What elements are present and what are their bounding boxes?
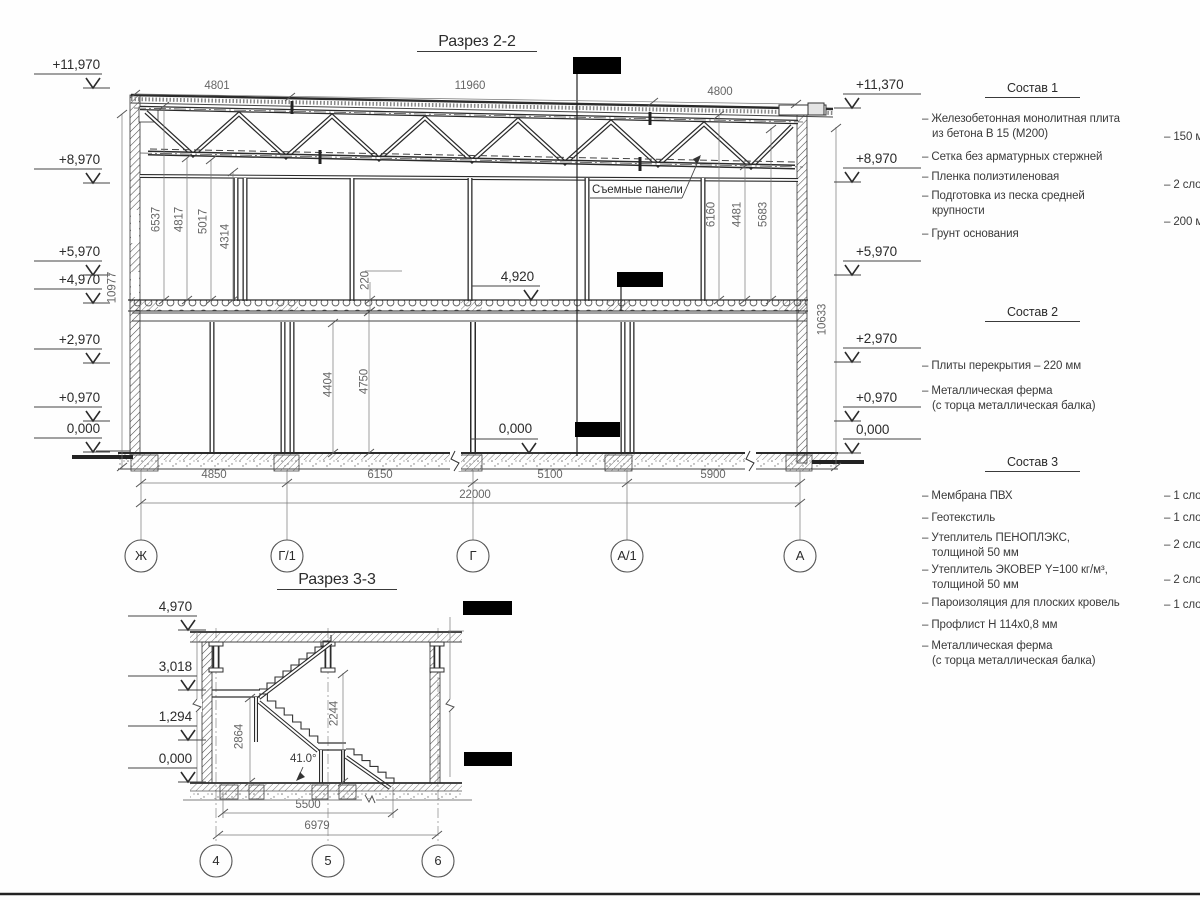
note-value: – 1 слой <box>1164 489 1200 504</box>
wall-right <box>797 112 807 463</box>
dim-label: 4801 <box>187 79 247 94</box>
elevation-label: +2,970 <box>28 332 100 347</box>
redaction-box <box>463 601 512 615</box>
dim-label: 5017 <box>197 192 212 252</box>
dim-label: 5683 <box>757 185 772 245</box>
dim-label: 4850 <box>174 468 254 483</box>
dim-label: 6537 <box>150 190 165 250</box>
columns-1st-floor <box>212 322 632 453</box>
elevation-label: +5,970 <box>28 244 100 259</box>
note-item: – Подготовка из песка средней крупности <box>922 189 1127 219</box>
dim-label: 4750 <box>358 352 373 412</box>
composition-2-title: Состав 2 <box>985 305 1080 322</box>
note-value: – 2 слоя <box>1164 538 1200 553</box>
elevation-label: +0,970 <box>856 390 931 405</box>
elevation-label: 1,294 <box>120 709 192 724</box>
note-item: – Грунт основания <box>922 227 1127 242</box>
composition-3-title: Состав 3 <box>985 455 1080 472</box>
note-value: – 2 слоя <box>1164 178 1200 193</box>
elevation-label: +11,370 <box>856 77 931 92</box>
note-item: – Плиты перекрытия – 220 мм <box>922 359 1127 374</box>
dim-label: 220 <box>359 251 374 311</box>
note-value: – 150 мм <box>1164 130 1200 145</box>
axis-bubble-label: 6 <box>418 853 458 868</box>
redaction-box <box>575 422 620 437</box>
elevation-label: +5,970 <box>856 244 931 259</box>
elevation-label: 0,000 <box>120 751 192 766</box>
drawing-sheet: Разрез 2-2 +11,970 +8,970 +5,970 +4,970 … <box>0 0 1200 900</box>
removable-panels-label: Съемные панели <box>592 183 687 198</box>
note-item: – Утеплитель ПЕНОПЛЭКС, толщиной 50 мм <box>922 531 1132 561</box>
elevation-label: +0,970 <box>28 390 100 405</box>
dim-label: 11960 <box>440 79 500 94</box>
angle-label: 41.0° <box>290 752 332 767</box>
note-value: – 200 мм <box>1164 215 1200 230</box>
note-item: – Пароизоляция для плоских кровель <box>922 596 1132 611</box>
dim-label: 4817 <box>173 190 188 250</box>
elevation-label: 3,018 <box>120 659 192 674</box>
redaction-box <box>573 57 621 74</box>
dim-label: 6150 <box>340 468 420 483</box>
dim-label: 6160 <box>705 185 720 245</box>
axis-bubble-label: А/1 <box>607 548 647 563</box>
dim-label: 4481 <box>731 185 746 245</box>
note-value: – 1 слой <box>1164 598 1200 613</box>
elevation-label: 0,000 <box>28 421 100 436</box>
axis-bubble-label: Г <box>453 548 493 563</box>
elevation-label: +11,970 <box>28 57 100 72</box>
axis-bubble-label: 4 <box>196 853 236 868</box>
redaction-box <box>617 272 663 287</box>
dim-label: 4800 <box>690 85 750 100</box>
note-item: – Сетка без арматурных стержней <box>922 150 1127 165</box>
dim-label: 2244 <box>328 684 343 744</box>
section-3-3-title: Разрез 3-3 <box>277 572 397 590</box>
axis-bubble-label: Г/1 <box>267 548 307 563</box>
note-item: – Геотекстиль <box>922 511 1132 526</box>
section-3-3 <box>128 601 512 877</box>
note-value: – 2 слоя <box>1164 573 1200 588</box>
dim-label: 5500 <box>268 798 348 813</box>
dim-label: 5100 <box>510 468 590 483</box>
section-2-2-title: Разрез 2-2 <box>417 34 537 52</box>
dim-label: 22000 <box>435 488 515 503</box>
elevation-label: +8,970 <box>856 151 931 166</box>
note-item: – Утеплитель ЭКОВЕР Y=100 кг/м³, толщино… <box>922 563 1132 593</box>
dim-label: 6979 <box>277 819 357 834</box>
elevation-label: 4,920 <box>464 269 534 284</box>
dim-label: 10977 <box>106 258 121 318</box>
axis-bubble-label: Ж <box>121 548 161 563</box>
composition-1-title: Состав 1 <box>985 81 1080 98</box>
note-item: – Пленка полиэтиленовая <box>922 170 1127 185</box>
elevation-label: +2,970 <box>856 331 931 346</box>
dim-label: 4314 <box>219 207 234 267</box>
dim-label: 5900 <box>673 468 753 483</box>
elevation-label: +8,970 <box>28 152 100 167</box>
dim-label: 4404 <box>322 355 337 415</box>
elevation-label: 0,000 <box>856 422 931 437</box>
dim-label: 10633 <box>816 290 831 350</box>
axis-bubble-label: А <box>780 548 820 563</box>
note-item: – Металлическая ферма (с торца металличе… <box>922 639 1132 669</box>
floor-slab-2 <box>128 300 808 321</box>
note-item: – Мембрана ПВХ <box>922 489 1132 504</box>
note-item: – Металлическая ферма (с торца металличе… <box>922 384 1127 414</box>
note-item: – Профлист Н 114х0,8 мм <box>922 618 1132 633</box>
elevation-label: 0,000 <box>462 421 532 436</box>
note-item: – Железобетонная монолитная плита из бет… <box>922 112 1127 142</box>
axis-bubble-label: 5 <box>308 853 348 868</box>
dim-label: 2864 <box>233 707 248 767</box>
elevation-label: +4,970 <box>28 272 100 287</box>
note-value: – 1 слой <box>1164 511 1200 526</box>
redaction-box <box>464 752 512 766</box>
elevation-label: 4,970 <box>120 599 192 614</box>
